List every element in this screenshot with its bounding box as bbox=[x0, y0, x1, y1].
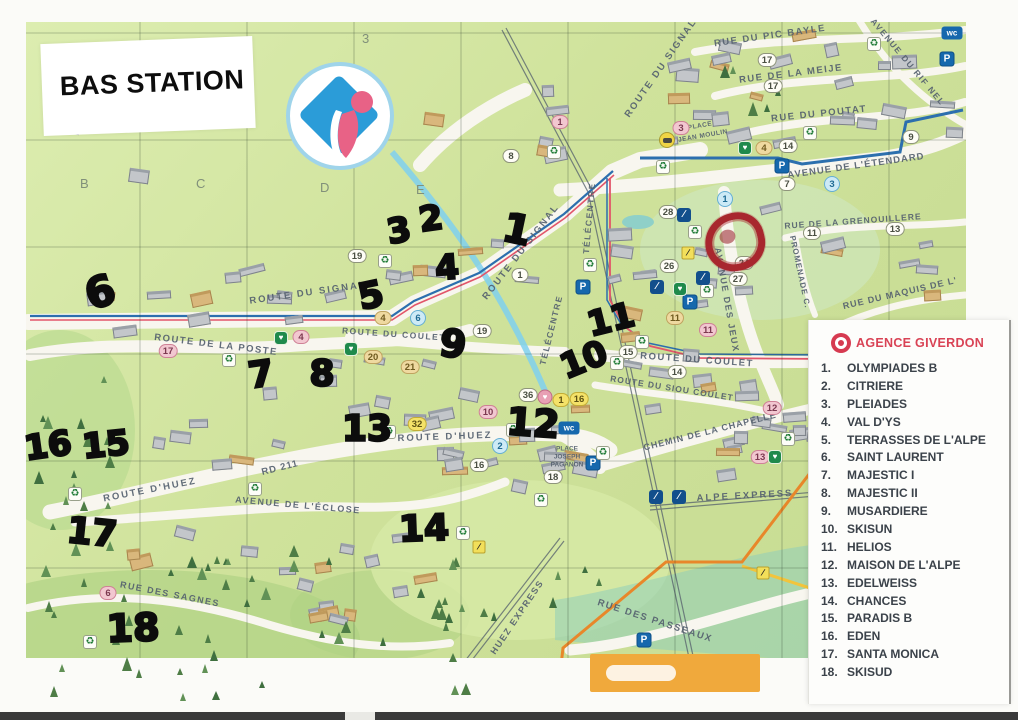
legend-item: 15.PARADIS B bbox=[821, 611, 1010, 629]
legend-item: 17.SANTA MONICA bbox=[821, 647, 1010, 665]
tree-icon bbox=[259, 681, 265, 688]
legend-item-label: VAL D'YS bbox=[847, 415, 901, 429]
agency-logo-icon bbox=[831, 333, 851, 353]
legend-item-number: 5. bbox=[821, 433, 847, 447]
tree-icon bbox=[451, 685, 459, 695]
legend-item-label: MAISON DE L'ALPE bbox=[847, 558, 961, 572]
resort-logo-icon bbox=[284, 58, 396, 179]
tree-icon bbox=[136, 669, 142, 678]
legend-item-label: SANTA MONICA bbox=[847, 647, 939, 661]
legend-item-number: 8. bbox=[821, 486, 847, 500]
legend-item-label: OLYMPIADES B bbox=[847, 361, 937, 375]
legend-item: 14.CHANCES bbox=[821, 594, 1010, 612]
legend-header: AGENCE GIVERDON bbox=[809, 320, 1010, 357]
legend-item: 7.MAJESTIC I bbox=[821, 468, 1010, 486]
legend-panel: AGENCE GIVERDON 1.OLYMPIADES B2.CITRIERE… bbox=[808, 320, 1010, 704]
tree-icon bbox=[177, 668, 183, 675]
legend-item-label: EDEN bbox=[847, 629, 880, 643]
legend-item-number: 6. bbox=[821, 450, 847, 464]
legend-item-label: PLEIADES bbox=[847, 397, 907, 411]
legend-item: 4.VAL D'YS bbox=[821, 415, 1010, 433]
legend-item-label: HELIOS bbox=[847, 540, 892, 554]
legend-item-number: 15. bbox=[821, 611, 847, 625]
legend-item: 8.MAJESTIC II bbox=[821, 486, 1010, 504]
legend-item-number: 18. bbox=[821, 665, 847, 679]
tree-icon bbox=[202, 664, 208, 673]
legend-list: 1.OLYMPIADES B2.CITRIERE3.PLEIADES4.VAL … bbox=[809, 357, 1010, 683]
legend-item-number: 2. bbox=[821, 379, 847, 393]
legend-item-number: 11. bbox=[821, 540, 847, 554]
legend-item: 12.MAISON DE L'ALPE bbox=[821, 558, 1010, 576]
legend-item: 10.SKISUN bbox=[821, 522, 1010, 540]
legend-item-number: 16. bbox=[821, 629, 847, 643]
tree-icon bbox=[180, 693, 186, 701]
legend-item-label: PARADIS B bbox=[847, 611, 912, 625]
legend-item-label: MAJESTIC II bbox=[847, 486, 918, 500]
legend-item-label: TERRASSES DE L'ALPE bbox=[847, 433, 986, 447]
legend-item: 16.EDEN bbox=[821, 629, 1010, 647]
legend-item-label: SAINT LAURENT bbox=[847, 450, 944, 464]
scanned-map-page: 3BCDE ROUTE DU SIGNALROUTE DU SIGNALROUT… bbox=[0, 0, 1018, 720]
legend-item-label: EDELWEISS bbox=[847, 576, 917, 590]
legend-item: 9.MUSARDIERE bbox=[821, 504, 1010, 522]
legend-item: 13.EDELWEISS bbox=[821, 576, 1010, 594]
page-title: BAS STATION bbox=[59, 64, 245, 102]
orange-banner bbox=[590, 654, 760, 692]
tree-icon bbox=[59, 664, 65, 672]
legend-item-number: 14. bbox=[821, 594, 847, 608]
legend-item-number: 7. bbox=[821, 468, 847, 482]
legend-item-number: 13. bbox=[821, 576, 847, 590]
legend-item-number: 9. bbox=[821, 504, 847, 518]
legend-item-number: 3. bbox=[821, 397, 847, 411]
scan-edge-strip bbox=[0, 712, 1018, 720]
legend-item-number: 17. bbox=[821, 647, 847, 661]
tree-icon bbox=[122, 657, 132, 671]
legend-item: 1.OLYMPIADES B bbox=[821, 361, 1010, 379]
legend-item: 2.CITRIERE bbox=[821, 379, 1010, 397]
legend-item-label: MUSARDIERE bbox=[847, 504, 928, 518]
legend-item-label: MAJESTIC I bbox=[847, 468, 914, 482]
legend-item: 6.SAINT LAURENT bbox=[821, 450, 1010, 468]
legend-item-label: SKISUD bbox=[847, 665, 892, 679]
legend-item: 5.TERRASSES DE L'ALPE bbox=[821, 433, 1010, 451]
map-title-box: BAS STATION bbox=[40, 36, 255, 136]
legend-item-label: CITRIERE bbox=[847, 379, 903, 393]
legend-item: 18.SKISUD bbox=[821, 665, 1010, 683]
tree-icon bbox=[50, 686, 58, 697]
tree-icon bbox=[461, 683, 471, 695]
legend-item: 3.PLEIADES bbox=[821, 397, 1010, 415]
tree-icon bbox=[212, 691, 220, 700]
legend-item-number: 12. bbox=[821, 558, 847, 572]
legend-item-number: 10. bbox=[821, 522, 847, 536]
agency-name: AGENCE GIVERDON bbox=[856, 336, 984, 350]
legend-item-label: CHANCES bbox=[847, 594, 906, 608]
legend-item: 11.HELIOS bbox=[821, 540, 1010, 558]
legend-item-label: SKISUN bbox=[847, 522, 892, 536]
legend-item-number: 1. bbox=[821, 361, 847, 375]
legend-item-number: 4. bbox=[821, 415, 847, 429]
